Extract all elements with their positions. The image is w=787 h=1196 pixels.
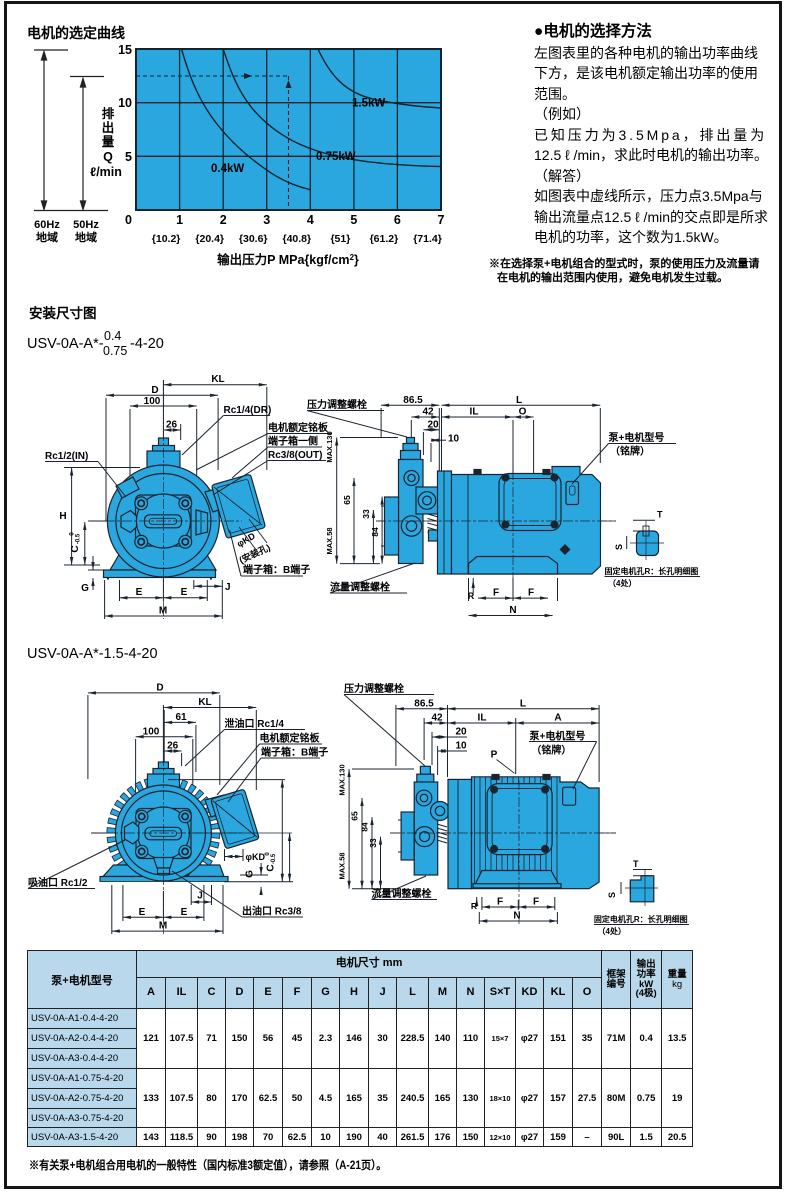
svg-text:M: M: [159, 606, 167, 617]
svg-text:10: 10: [118, 96, 132, 110]
svg-text:E: E: [139, 907, 146, 918]
svg-text:F: F: [493, 588, 499, 599]
svg-text:排: 排: [102, 106, 115, 121]
svg-text:MAX.130: MAX.130: [325, 431, 334, 462]
svg-text:泵+电机型号: 泵+电机型号: [609, 431, 665, 444]
svg-text:O: O: [519, 407, 527, 418]
svg-text:J: J: [197, 891, 203, 902]
svg-text:-0.5: -0.5: [271, 853, 277, 864]
svg-text:F: F: [533, 897, 539, 908]
svg-text:T: T: [633, 859, 639, 869]
svg-text:26: 26: [166, 420, 178, 431]
svg-text:61: 61: [175, 712, 187, 723]
svg-text:33: 33: [361, 509, 371, 519]
svg-text:0.4kW: 0.4kW: [211, 163, 244, 175]
svg-text:84: 84: [360, 822, 370, 832]
svg-text:Q: Q: [103, 150, 113, 164]
svg-text:10: 10: [455, 741, 467, 752]
svg-text:流量调整螺栓: 流量调整螺栓: [372, 887, 432, 900]
svg-text:固定电机孔R：长孔明细图: 固定电机孔R：长孔明细图: [594, 914, 688, 924]
svg-text:L: L: [520, 698, 526, 709]
svg-text:G: G: [245, 870, 256, 878]
svg-text:-0.5: -0.5: [76, 533, 82, 544]
svg-text:{30.6}: {30.6}: [239, 233, 268, 245]
svg-text:量: 量: [102, 135, 115, 149]
svg-text:地域: 地域: [75, 230, 97, 244]
svg-text:H: H: [59, 511, 66, 522]
svg-text:KL: KL: [211, 374, 224, 385]
svg-text:42: 42: [431, 713, 443, 724]
svg-text:φKD: φKD: [246, 852, 266, 862]
svg-text:G: G: [81, 583, 89, 594]
svg-text:（4处）: （4处）: [608, 578, 636, 588]
svg-text:IL: IL: [478, 713, 487, 724]
svg-text:L: L: [516, 395, 522, 406]
svg-text:S: S: [614, 544, 624, 550]
svg-text:33: 33: [368, 838, 378, 848]
svg-text:60Hz: 60Hz: [34, 219, 60, 231]
svg-text:KL: KL: [198, 697, 211, 708]
svg-text:S: S: [607, 892, 617, 898]
svg-text:3: 3: [263, 213, 270, 227]
svg-text:86.5: 86.5: [414, 698, 434, 709]
svg-text:T: T: [657, 510, 663, 520]
svg-text:{71.4}: {71.4}: [413, 233, 442, 245]
svg-text:{51}: {51}: [330, 233, 350, 245]
svg-text:电机额定铭板: 电机额定铭板: [268, 421, 329, 434]
svg-text:65: 65: [350, 811, 360, 821]
svg-text:A: A: [554, 713, 561, 724]
svg-text:6: 6: [394, 213, 401, 227]
svg-text:地域: 地域: [36, 230, 58, 244]
svg-text:86.5: 86.5: [403, 395, 423, 406]
svg-text:D: D: [156, 683, 163, 694]
svg-text:E: E: [136, 587, 143, 598]
svg-text:84: 84: [370, 527, 380, 537]
svg-text:R: R: [471, 901, 477, 911]
svg-text:1: 1: [176, 213, 183, 227]
svg-text:IL: IL: [470, 407, 479, 418]
svg-text:7: 7: [438, 213, 445, 227]
svg-text:Rc1/4(DR): Rc1/4(DR): [224, 405, 272, 416]
svg-text:固定电机孔R：长孔明细图: 固定电机孔R：长孔明细图: [605, 566, 699, 576]
svg-text:泄油口 Rc1/4: 泄油口 Rc1/4: [225, 717, 285, 730]
svg-text:ℓ/min: ℓ/min: [90, 165, 122, 179]
svg-text:0.75kW: 0.75kW: [316, 151, 356, 163]
svg-text:C: C: [266, 864, 277, 871]
svg-text:100: 100: [144, 396, 161, 407]
svg-text:出: 出: [102, 120, 115, 135]
svg-text:压力调整螺栓: 压力调整螺栓: [307, 398, 367, 411]
svg-text:{40.8}: {40.8}: [282, 233, 311, 245]
svg-text:吸油口 Rc1/2: 吸油口 Rc1/2: [28, 876, 88, 889]
svg-text:J: J: [225, 582, 231, 593]
svg-text:20: 20: [427, 419, 439, 430]
svg-text:输出压力P MPa{kgf/cm2}: 输出压力P MPa{kgf/cm2}: [217, 252, 359, 267]
svg-text:Rc1/2(IN): Rc1/2(IN): [45, 451, 88, 462]
svg-text:出油口 Rc3/8: 出油口 Rc3/8: [242, 905, 302, 918]
svg-text:E: E: [181, 907, 188, 918]
svg-text:N: N: [509, 605, 516, 616]
svg-text:端子箱：B端子: 端子箱：B端子: [243, 563, 310, 576]
svg-text:65: 65: [342, 495, 352, 505]
svg-text:C: C: [70, 545, 81, 552]
svg-text:压力调整螺栓: 压力调整螺栓: [344, 682, 404, 695]
svg-text:MAX.58: MAX.58: [338, 852, 347, 879]
svg-text:42: 42: [422, 407, 434, 418]
svg-text:15: 15: [118, 43, 132, 57]
svg-text:2: 2: [220, 213, 227, 227]
svg-text:{61.2}: {61.2}: [370, 233, 399, 245]
svg-text:MAX.58: MAX.58: [325, 527, 334, 554]
svg-text:{20.4}: {20.4}: [195, 233, 224, 245]
svg-text:（铭牌）: （铭牌）: [531, 744, 571, 757]
svg-text:{10.2}: {10.2}: [152, 233, 181, 245]
svg-text:5: 5: [125, 150, 132, 164]
svg-text:50Hz: 50Hz: [73, 219, 99, 231]
svg-text:泵+电机型号: 泵+电机型号: [530, 730, 586, 743]
svg-text:F: F: [528, 588, 534, 599]
svg-text:M: M: [159, 921, 167, 932]
svg-text:端子箱：B端子: 端子箱：B端子: [261, 746, 328, 759]
svg-text:0: 0: [125, 213, 132, 227]
svg-text:P: P: [491, 750, 498, 761]
svg-text:电机额定铭板: 电机额定铭板: [260, 732, 321, 745]
svg-text:1.5kW: 1.5kW: [352, 98, 385, 110]
svg-text:10: 10: [448, 434, 460, 445]
svg-text:100: 100: [143, 726, 160, 737]
svg-text:Rc3/8(OUT): Rc3/8(OUT): [268, 450, 322, 461]
svg-text:MAX.130: MAX.130: [338, 764, 347, 795]
svg-text:26: 26: [167, 741, 179, 752]
svg-text:5: 5: [350, 213, 357, 227]
svg-text:N: N: [513, 911, 520, 922]
svg-text:R: R: [468, 591, 475, 601]
svg-text:（4处）: （4处）: [598, 926, 626, 936]
svg-text:4: 4: [307, 213, 314, 227]
svg-text:E: E: [181, 587, 188, 598]
svg-text:20: 20: [455, 727, 467, 738]
svg-text:端子箱一侧: 端子箱一侧: [268, 435, 318, 448]
svg-text:（铭牌）: （铭牌）: [610, 445, 650, 458]
svg-text:F: F: [497, 897, 503, 908]
svg-text:D: D: [151, 385, 158, 396]
